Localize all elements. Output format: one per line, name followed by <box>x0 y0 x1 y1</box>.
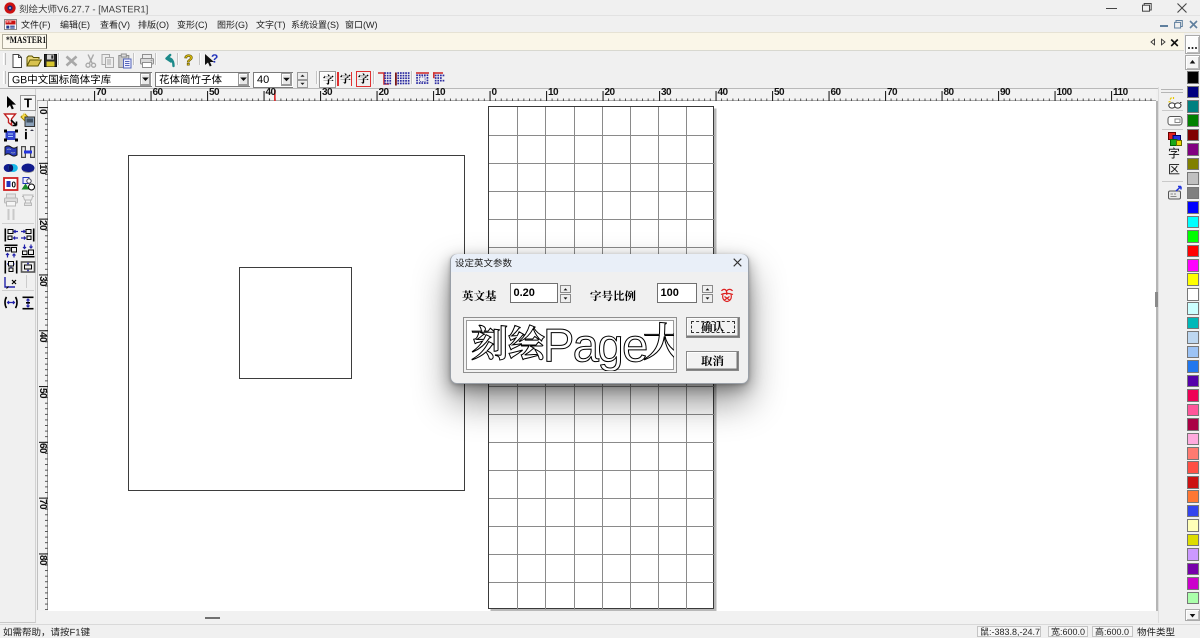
svg-text:0: 0 <box>11 180 16 189</box>
